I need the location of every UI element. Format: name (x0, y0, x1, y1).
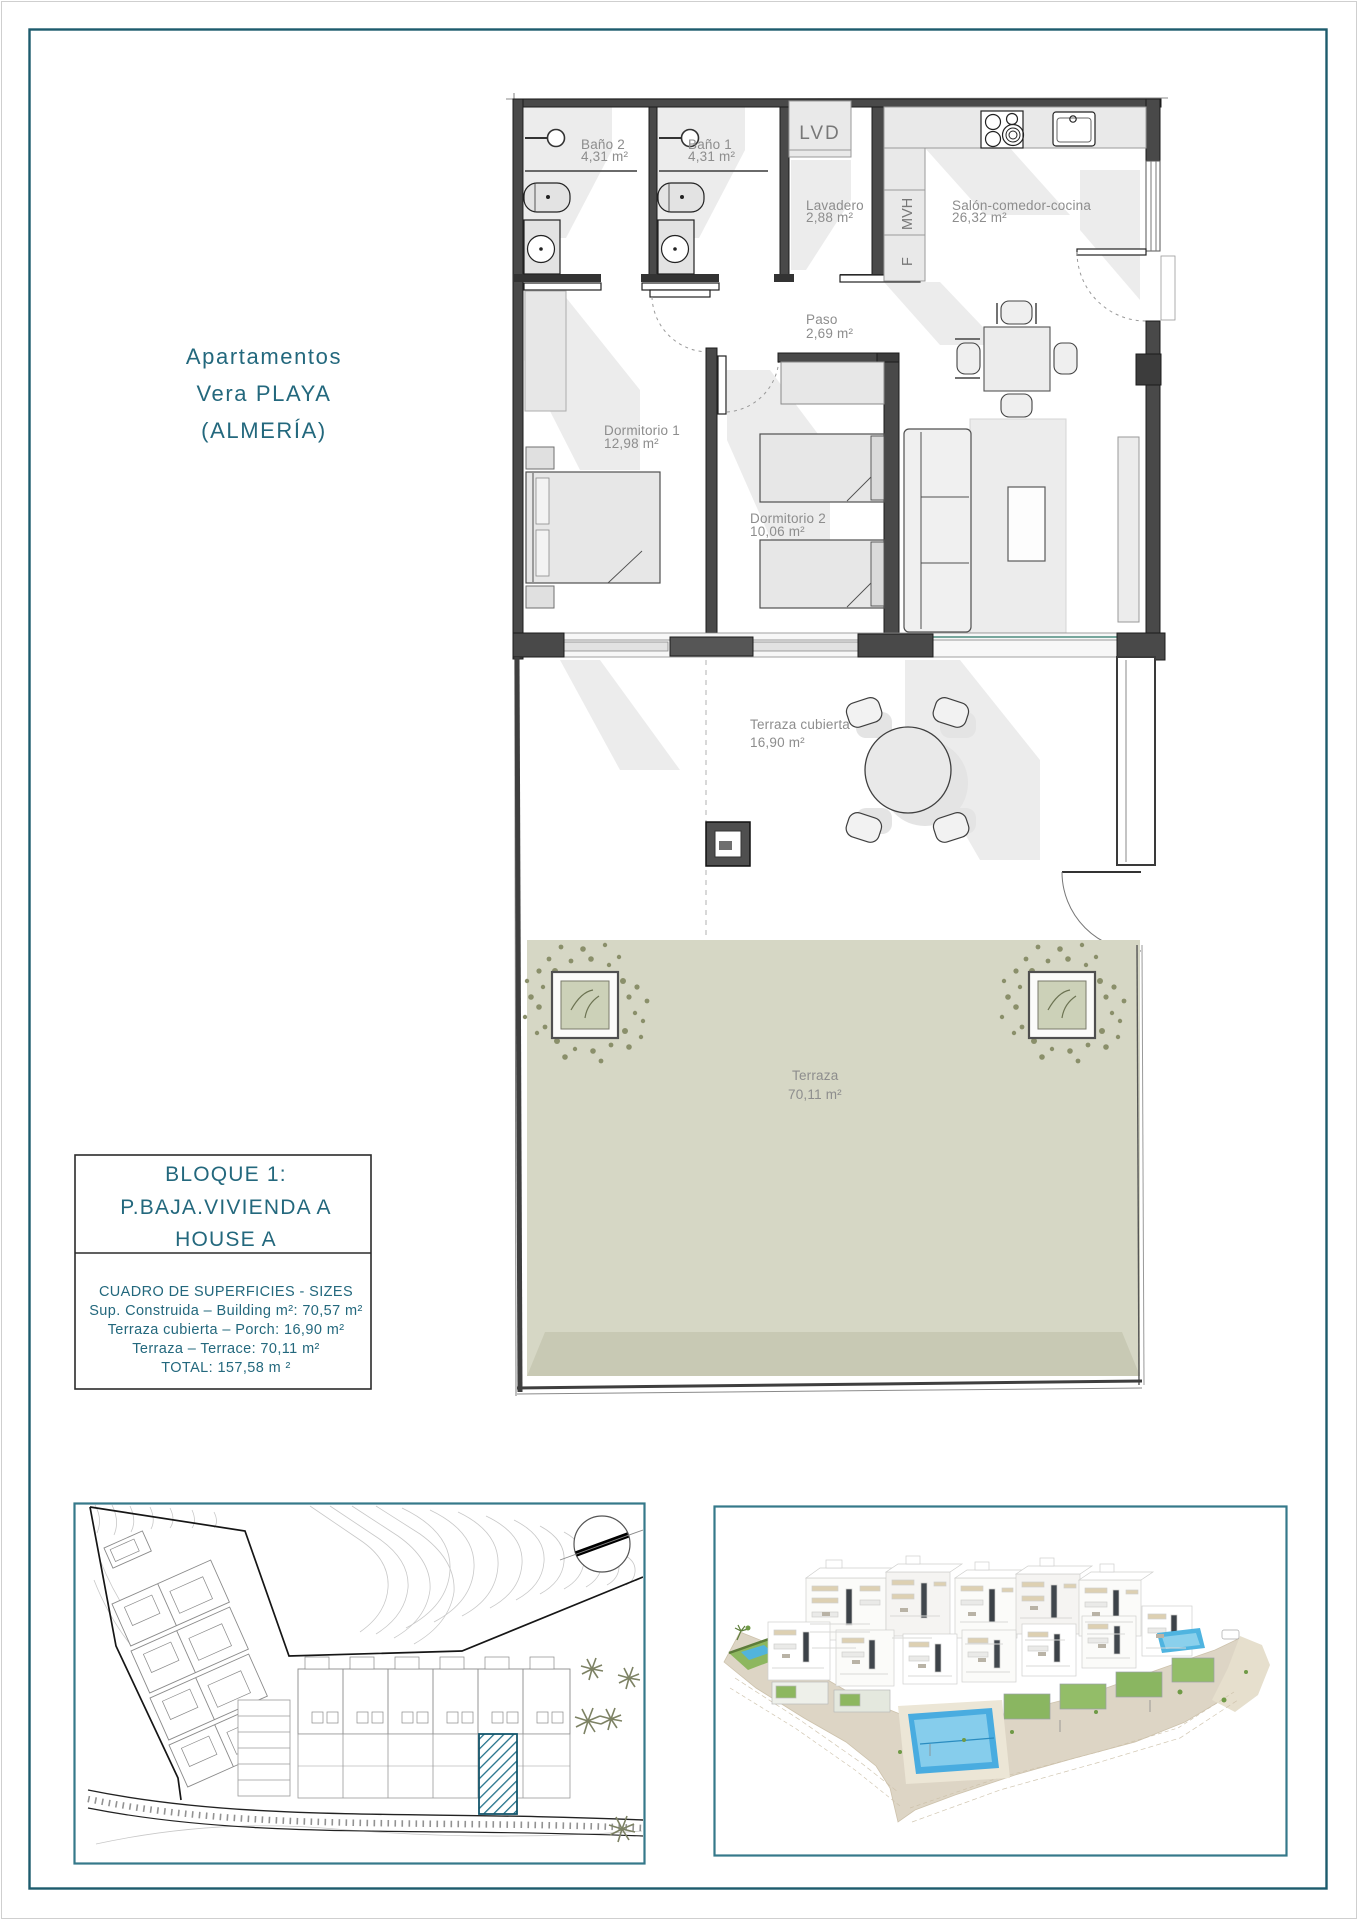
svg-text:Paso: Paso (806, 312, 838, 327)
svg-text:LVD: LVD (799, 123, 841, 144)
svg-text:10,06 m²: 10,06 m² (750, 524, 805, 539)
svg-text:Terraza cubierta – Porch: 16,: Terraza cubierta – Porch: 16,90 m² (108, 1322, 345, 1338)
svg-text:Terraza: Terraza (792, 1068, 839, 1083)
svg-text:Vera PLAYA: Vera PLAYA (196, 381, 331, 406)
svg-text:(ALMERÍA): (ALMERÍA) (201, 418, 327, 443)
svg-text:Apartamentos: Apartamentos (186, 344, 342, 369)
svg-text:4,31 m²: 4,31 m² (581, 149, 628, 164)
svg-text:MVH: MVH (900, 198, 916, 230)
svg-text:70,11 m²: 70,11 m² (788, 1087, 842, 1102)
svg-text:2,88 m²: 2,88 m² (806, 210, 853, 225)
svg-text:4,31 m²: 4,31 m² (688, 149, 735, 164)
svg-text:Sup. Construida – Building m²: Sup. Construida – Building m²: 70,57 m² (89, 1303, 363, 1319)
svg-text:Terraza – Terrace: 70,11 m²: Terraza – Terrace: 70,11 m² (132, 1341, 320, 1357)
svg-text:26,32 m²: 26,32 m² (952, 210, 1007, 225)
svg-text:TOTAL: 157,58 m ²: TOTAL: 157,58 m ² (161, 1360, 291, 1376)
svg-text:16,90 m²: 16,90 m² (750, 735, 805, 750)
svg-text:12,98 m²: 12,98 m² (604, 436, 659, 451)
svg-text:P.BAJA.VIVIENDA A: P.BAJA.VIVIENDA A (120, 1196, 331, 1219)
svg-text:BLOQUE 1:: BLOQUE 1: (165, 1163, 287, 1186)
svg-text:Terraza cubierta: Terraza cubierta (750, 717, 850, 732)
svg-text:CUADRO DE SUPERFICIES - SIZES: CUADRO DE SUPERFICIES - SIZES (99, 1284, 353, 1300)
svg-text:2,69 m²: 2,69 m² (806, 326, 853, 341)
svg-text:F: F (900, 257, 916, 266)
svg-text:HOUSE A: HOUSE A (175, 1228, 277, 1251)
